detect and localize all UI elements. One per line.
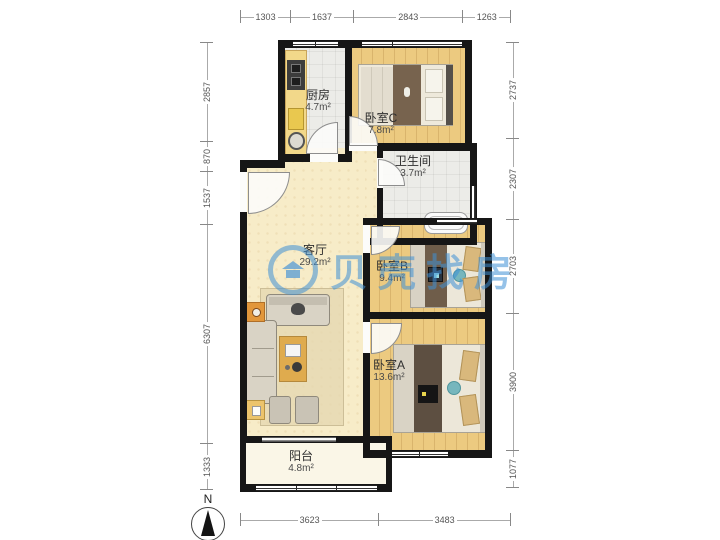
- room-label-living-room: 客厅 29.2m²: [299, 243, 330, 269]
- bedroom-a-door-opening: [363, 322, 370, 353]
- room-name: 客厅: [299, 243, 330, 257]
- dimension-value: 1077: [508, 457, 518, 481]
- dimension-segment: 3623: [240, 513, 378, 526]
- dimension-segment: 3483: [378, 513, 511, 526]
- room-name: 卧室B: [376, 259, 408, 273]
- window-mullion: [315, 42, 316, 46]
- room-area: 29.2m²: [299, 257, 330, 269]
- cup: [252, 406, 261, 416]
- room-label-bedroom-c: 卧室C 7.8m²: [365, 111, 398, 137]
- wall-bedroom-c-right: [465, 40, 472, 150]
- dimension-value: 3483: [433, 515, 457, 525]
- bed-remote: [404, 87, 410, 97]
- room-area: 7.8m²: [365, 125, 398, 137]
- room-name: 卧室C: [365, 111, 398, 125]
- kitchen-sink: [288, 132, 305, 150]
- north-label: N: [186, 492, 230, 506]
- room-label-bedroom-a: 卧室A 13.6m²: [373, 358, 405, 384]
- dimension-segment: 2857: [200, 42, 213, 141]
- coffee-table: [279, 336, 307, 382]
- dimension-value: 1537: [202, 186, 212, 210]
- dimension-value: 2843: [396, 12, 420, 22]
- wall-kitchen-bottom-l: [278, 154, 310, 162]
- dimension-value: 1637: [310, 12, 334, 22]
- wall-right-main: [485, 218, 492, 458]
- dimension-segment: 3900: [506, 313, 519, 450]
- dimension-segment: 1537: [200, 171, 213, 224]
- bedroom-c-window: [362, 41, 462, 47]
- pillow: [459, 394, 480, 426]
- dimension-value: 1333: [202, 455, 212, 479]
- wall-kitchen-bottom-r: [338, 154, 352, 162]
- dimension-segment: 1077: [506, 450, 519, 488]
- dimension-segment: 1303: [240, 10, 290, 23]
- room-name: 阳台: [288, 449, 314, 463]
- bedroom-a-window: [392, 451, 448, 457]
- dimension-value: 2857: [202, 80, 212, 104]
- dimension-row-bottom: 3623 3483: [240, 513, 511, 526]
- dimension-segment: 1333: [200, 443, 213, 490]
- table-kettle: [292, 362, 302, 372]
- balcony-sliding-door: [262, 437, 336, 442]
- stove: [287, 60, 305, 90]
- bed: [410, 242, 487, 308]
- dimension-row-top: 1303 1637 2843 1263: [240, 10, 511, 23]
- wall-left-main: [240, 212, 247, 443]
- room-label-kitchen: 厨房 4.7m²: [305, 88, 331, 114]
- pillow: [459, 350, 480, 382]
- room-area: 4.7m²: [305, 102, 331, 114]
- sofa-cushion-line: [252, 376, 274, 377]
- bed-headboard: [446, 65, 453, 125]
- bed-tray: [428, 267, 443, 282]
- bed-panel: [411, 243, 425, 307]
- dimension-segment: 2843: [353, 10, 462, 23]
- dimension-value: 3623: [298, 515, 322, 525]
- room-area: 4.8m²: [288, 463, 314, 475]
- tv-dot: [422, 392, 426, 396]
- table-cup: [285, 365, 290, 370]
- kitchen-door-opening: [310, 154, 338, 162]
- room-name: 厨房: [305, 88, 331, 102]
- dimension-segment: 1263: [462, 10, 511, 23]
- round-pillow: [447, 381, 461, 395]
- dimension-value: 6307: [202, 322, 212, 346]
- bedroom-b-window: [437, 219, 477, 224]
- dimension-column-right: 2737 2307 2703 3900 1077: [506, 42, 519, 488]
- sofa-cushion-line: [252, 348, 274, 349]
- balcony-window: [256, 485, 377, 491]
- dimension-value: 2703: [508, 254, 518, 278]
- room-area: 9.4m²: [376, 273, 408, 285]
- window-mullion: [392, 42, 393, 46]
- plant-table: [246, 302, 265, 322]
- dimension-segment: 2737: [506, 42, 519, 138]
- kitchen-appliance: [288, 108, 304, 130]
- room-label-balcony: 阳台 4.8m²: [288, 449, 314, 475]
- pillow: [462, 246, 481, 272]
- ottoman: [269, 396, 291, 424]
- sofa: [245, 320, 277, 404]
- stove-burner: [291, 64, 301, 73]
- pillow: [462, 276, 481, 302]
- bathroom-window: [471, 186, 476, 218]
- dimension-segment: 870: [200, 141, 213, 171]
- dimension-value: 3900: [508, 370, 518, 394]
- room-name: 卫生间: [395, 154, 431, 168]
- dimension-column-left: 2857 870 1537 6307 1333: [200, 42, 213, 490]
- wall-bedroom-b-a: [363, 312, 492, 319]
- dimension-value: 2307: [508, 167, 518, 191]
- dimension-segment: 1637: [290, 10, 353, 23]
- ottoman: [295, 396, 319, 424]
- room-label-bedroom-b: 卧室B 9.4m²: [376, 259, 408, 285]
- bedroom-b-door-opening: [363, 225, 370, 253]
- stove-burner: [291, 77, 301, 86]
- dimension-value: 1263: [475, 12, 499, 22]
- dimension-value: 2737: [508, 78, 518, 102]
- window-mullion: [296, 486, 297, 490]
- room-area: 3.7m²: [395, 168, 431, 180]
- wall-balcony-right: [386, 440, 392, 492]
- kitchen-window: [293, 41, 338, 47]
- entry-door-opening: [240, 172, 247, 212]
- plant: [252, 308, 261, 317]
- wall-kitchen-left: [278, 40, 285, 167]
- dimension-value: 1303: [254, 12, 278, 22]
- tray-dot: [434, 273, 439, 278]
- dimension-segment: 2307: [506, 138, 519, 219]
- bed-tv: [418, 385, 438, 403]
- room-label-bathroom: 卫生间 3.7m²: [395, 154, 431, 180]
- window-mullion: [419, 452, 420, 456]
- dimension-segment: 6307: [200, 224, 213, 443]
- bed: [393, 344, 486, 433]
- compass-needle-icon: [201, 510, 215, 536]
- dimension-value: 870: [202, 147, 212, 166]
- dimension-segment: 2703: [506, 219, 519, 314]
- north-compass: N: [186, 492, 230, 540]
- room-name: 卧室A: [373, 358, 405, 372]
- side-table: [246, 400, 265, 420]
- pillow: [425, 69, 443, 93]
- pillow: [425, 97, 443, 121]
- window-mullion: [336, 486, 337, 490]
- room-area: 13.6m²: [373, 372, 405, 384]
- sofa-decor: [291, 303, 305, 315]
- compass-ring-icon: [191, 507, 225, 540]
- floorplan-canvas: 厨房 4.7m² 卧室C 7.8m² 卫生间 3.7m² 客厅 29.2m² 卧…: [0, 0, 720, 540]
- table-card: [285, 344, 301, 357]
